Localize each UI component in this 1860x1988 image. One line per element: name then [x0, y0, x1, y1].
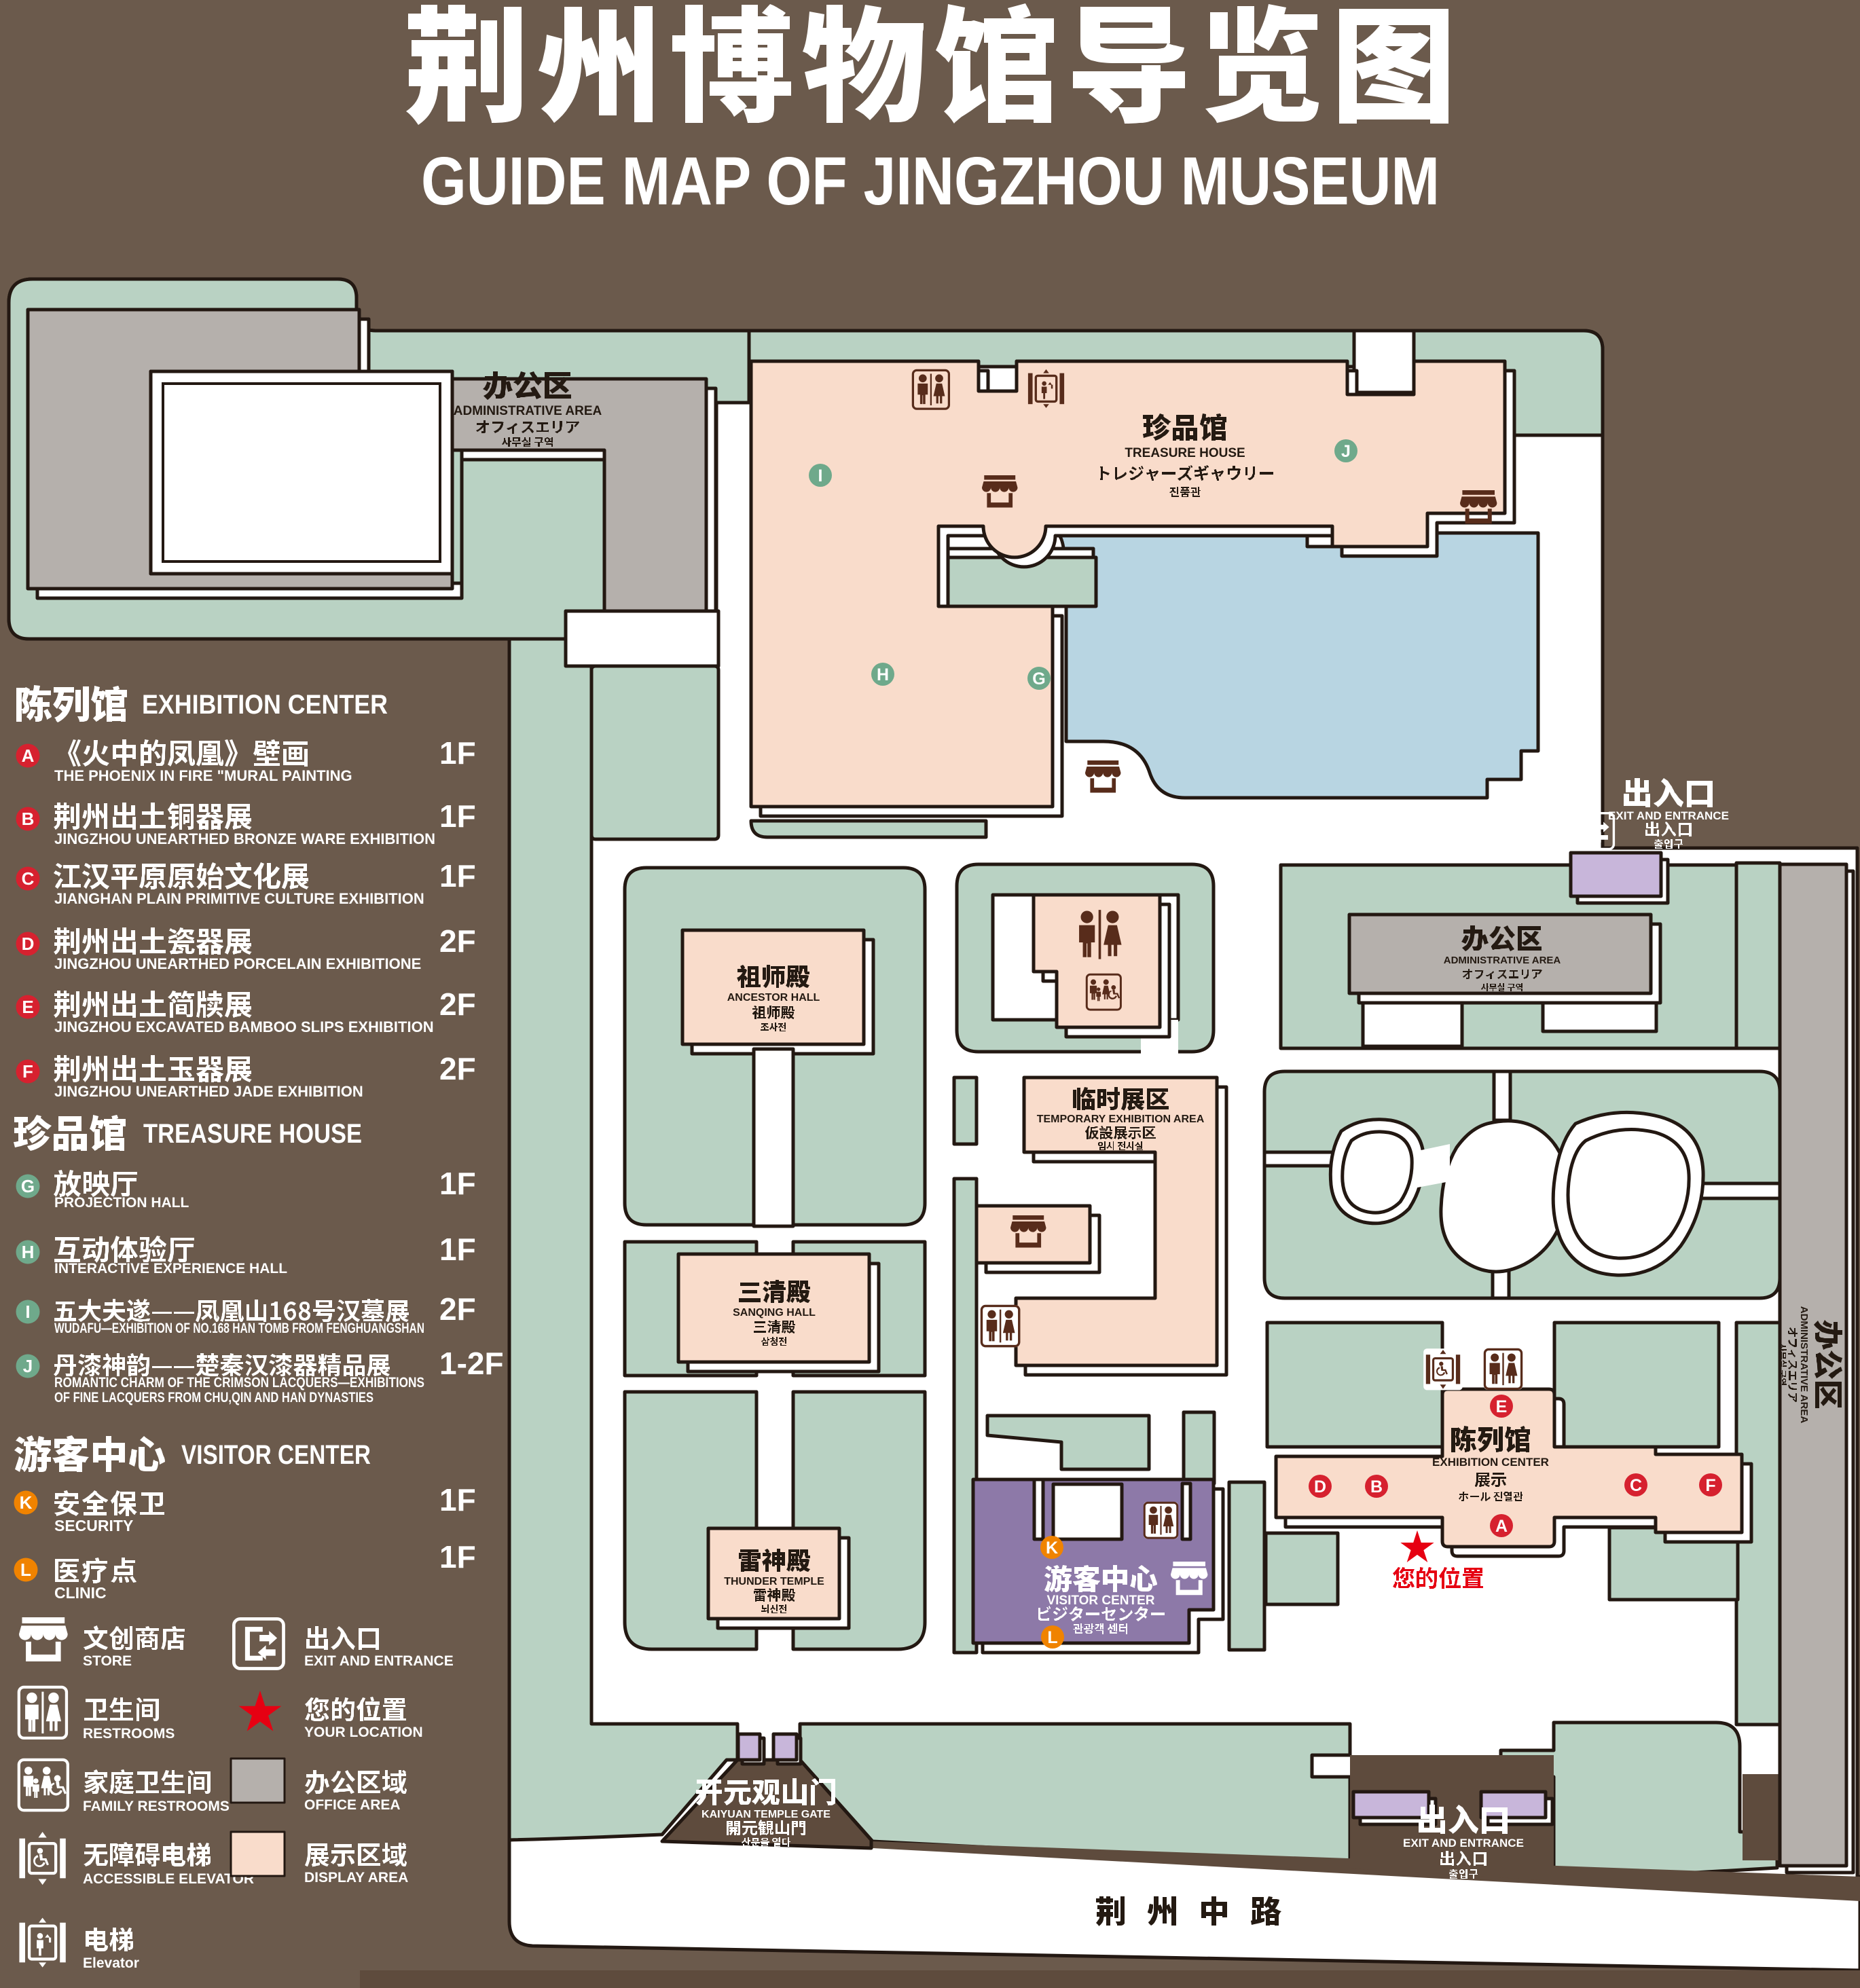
svg-text:1F: 1F: [439, 1482, 476, 1517]
svg-text:ANCESTOR HALL: ANCESTOR HALL: [727, 992, 820, 1004]
svg-text:CLINIC: CLINIC: [54, 1584, 107, 1602]
svg-text:A: A: [22, 745, 35, 766]
svg-text:ADMINISTRATIVE AREA: ADMINISTRATIVE AREA: [454, 404, 602, 418]
svg-text:JINGZHOU UNEARTHED JADE EXHIBI: JINGZHOU UNEARTHED JADE EXHIBITION: [54, 1083, 363, 1100]
svg-text:H: H: [22, 1242, 35, 1262]
svg-text:G: G: [21, 1176, 35, 1196]
svg-text:D: D: [22, 934, 35, 954]
svg-text:ACCESSIBLE ELEVATOR: ACCESSIBLE ELEVATOR: [83, 1871, 254, 1887]
svg-text:YOUR LOCATION: YOUR LOCATION: [304, 1725, 423, 1740]
svg-text:A: A: [1495, 1517, 1508, 1536]
svg-text:2F: 2F: [439, 1291, 476, 1327]
svg-text:THE PHOENIX IN FIRE "MURAL PAI: THE PHOENIX IN FIRE "MURAL PAINTING: [54, 767, 352, 784]
svg-text:STORE: STORE: [83, 1653, 132, 1669]
svg-text:EXHIBITION CENTER: EXHIBITION CENTER: [1432, 1456, 1549, 1469]
svg-text:F: F: [1705, 1476, 1715, 1495]
svg-text:B: B: [22, 809, 35, 829]
svg-text:I: I: [25, 1302, 30, 1322]
svg-text:DISPLAY AREA: DISPLAY AREA: [304, 1870, 408, 1885]
svg-text:C: C: [22, 868, 35, 889]
svg-text:EXIT AND ENTRANCE: EXIT AND ENTRANCE: [304, 1653, 454, 1669]
svg-text:EXIT AND ENTRANCE: EXIT AND ENTRANCE: [1403, 1837, 1524, 1849]
svg-text:L: L: [1047, 1628, 1057, 1647]
svg-text:1-2F: 1-2F: [439, 1346, 504, 1381]
svg-text:E: E: [22, 997, 33, 1017]
svg-text:1F: 1F: [439, 1166, 476, 1201]
svg-text:ADMINISTRATIVE AREA: ADMINISTRATIVE AREA: [1444, 955, 1561, 966]
svg-text:ROMANTIC CHARM OF THE CRIMSON: ROMANTIC CHARM OF THE CRIMSON LACQUERS—E…: [54, 1375, 424, 1391]
svg-text:2F: 2F: [439, 923, 476, 959]
svg-text:JINGZHOU EXCAVATED BAMBOO SLIP: JINGZHOU EXCAVATED BAMBOO SLIPS EXHIBITI…: [54, 1018, 434, 1035]
svg-text:1F: 1F: [439, 858, 476, 894]
svg-text:SECURITY: SECURITY: [54, 1517, 133, 1534]
svg-text:OF FINE LACQUERS FROM CHU,QIN: OF FINE LACQUERS FROM CHU,QIN AND HAN DY…: [54, 1390, 373, 1405]
svg-text:2F: 2F: [439, 987, 476, 1022]
svg-text:JINGZHOU UNEARTHED PORCELAIN E: JINGZHOU UNEARTHED PORCELAIN EXHIBITIONE: [54, 955, 421, 972]
svg-text:J: J: [1341, 442, 1351, 461]
svg-text:THUNDER TEMPLE: THUNDER TEMPLE: [724, 1576, 824, 1587]
svg-text:GUIDE MAP OF JINGZHOU MUSEUM: GUIDE MAP OF JINGZHOU MUSEUM: [421, 143, 1440, 219]
svg-text:EXHIBITION CENTER: EXHIBITION CENTER: [142, 690, 388, 720]
svg-text:INTERACTIVE EXPERIENCE HALL: INTERACTIVE EXPERIENCE HALL: [54, 1261, 287, 1276]
svg-text:1F: 1F: [439, 798, 476, 834]
svg-text:1F: 1F: [439, 1232, 476, 1267]
svg-text:L: L: [20, 1560, 31, 1580]
svg-text:TREASURE HOUSE: TREASURE HOUSE: [143, 1119, 362, 1149]
svg-text:2F: 2F: [439, 1051, 476, 1086]
svg-text:F: F: [22, 1061, 33, 1082]
svg-text:PROJECTION HALL: PROJECTION HALL: [54, 1195, 189, 1211]
svg-text:E: E: [1496, 1397, 1508, 1416]
svg-text:B: B: [1370, 1477, 1383, 1496]
svg-text:EXIT AND ENTRANCE: EXIT AND ENTRANCE: [1608, 809, 1729, 822]
svg-text:Elevator: Elevator: [83, 1955, 139, 1971]
svg-text:G: G: [1032, 669, 1045, 688]
svg-text:WUDAFU—EXHIBITION OF NO.168 HA: WUDAFU—EXHIBITION OF NO.168 HAN TOMB FRO…: [54, 1321, 424, 1336]
svg-text:OFFICE AREA: OFFICE AREA: [304, 1797, 401, 1813]
svg-text:VISITOR CENTER: VISITOR CENTER: [1046, 1594, 1154, 1608]
svg-text:K: K: [1046, 1539, 1058, 1558]
svg-text:SANQING HALL: SANQING HALL: [733, 1307, 816, 1319]
svg-text:1F: 1F: [439, 1539, 476, 1575]
svg-text:JIANGHAN PLAIN PRIMITIVE CULTU: JIANGHAN PLAIN PRIMITIVE CULTURE EXHIBIT…: [54, 890, 424, 907]
svg-text:TEMPORARY EXHIBITION AREA: TEMPORARY EXHIBITION AREA: [1037, 1113, 1205, 1125]
svg-text:KAIYUAN TEMPLE GATE: KAIYUAN TEMPLE GATE: [701, 1809, 831, 1820]
svg-text:1F: 1F: [439, 735, 476, 771]
svg-text:J: J: [23, 1356, 33, 1376]
svg-text:H: H: [877, 665, 889, 684]
svg-text:D: D: [1314, 1477, 1326, 1496]
svg-text:I: I: [818, 466, 823, 485]
svg-text:TREASURE HOUSE: TREASURE HOUSE: [1125, 446, 1245, 460]
svg-text:C: C: [1630, 1476, 1642, 1495]
svg-text:RESTROOMS: RESTROOMS: [83, 1726, 175, 1742]
svg-text:JINGZHOU UNEARTHED BRONZE WARE: JINGZHOU UNEARTHED BRONZE WARE EXHIBITIO…: [54, 830, 435, 847]
svg-text:ADMINISTRATIVE AREA: ADMINISTRATIVE AREA: [1798, 1306, 1810, 1424]
svg-text:K: K: [20, 1492, 33, 1513]
svg-text:VISITOR CENTER: VISITOR CENTER: [181, 1440, 371, 1470]
svg-text:FAMILY RESTROOMS: FAMILY RESTROOMS: [83, 1799, 230, 1814]
